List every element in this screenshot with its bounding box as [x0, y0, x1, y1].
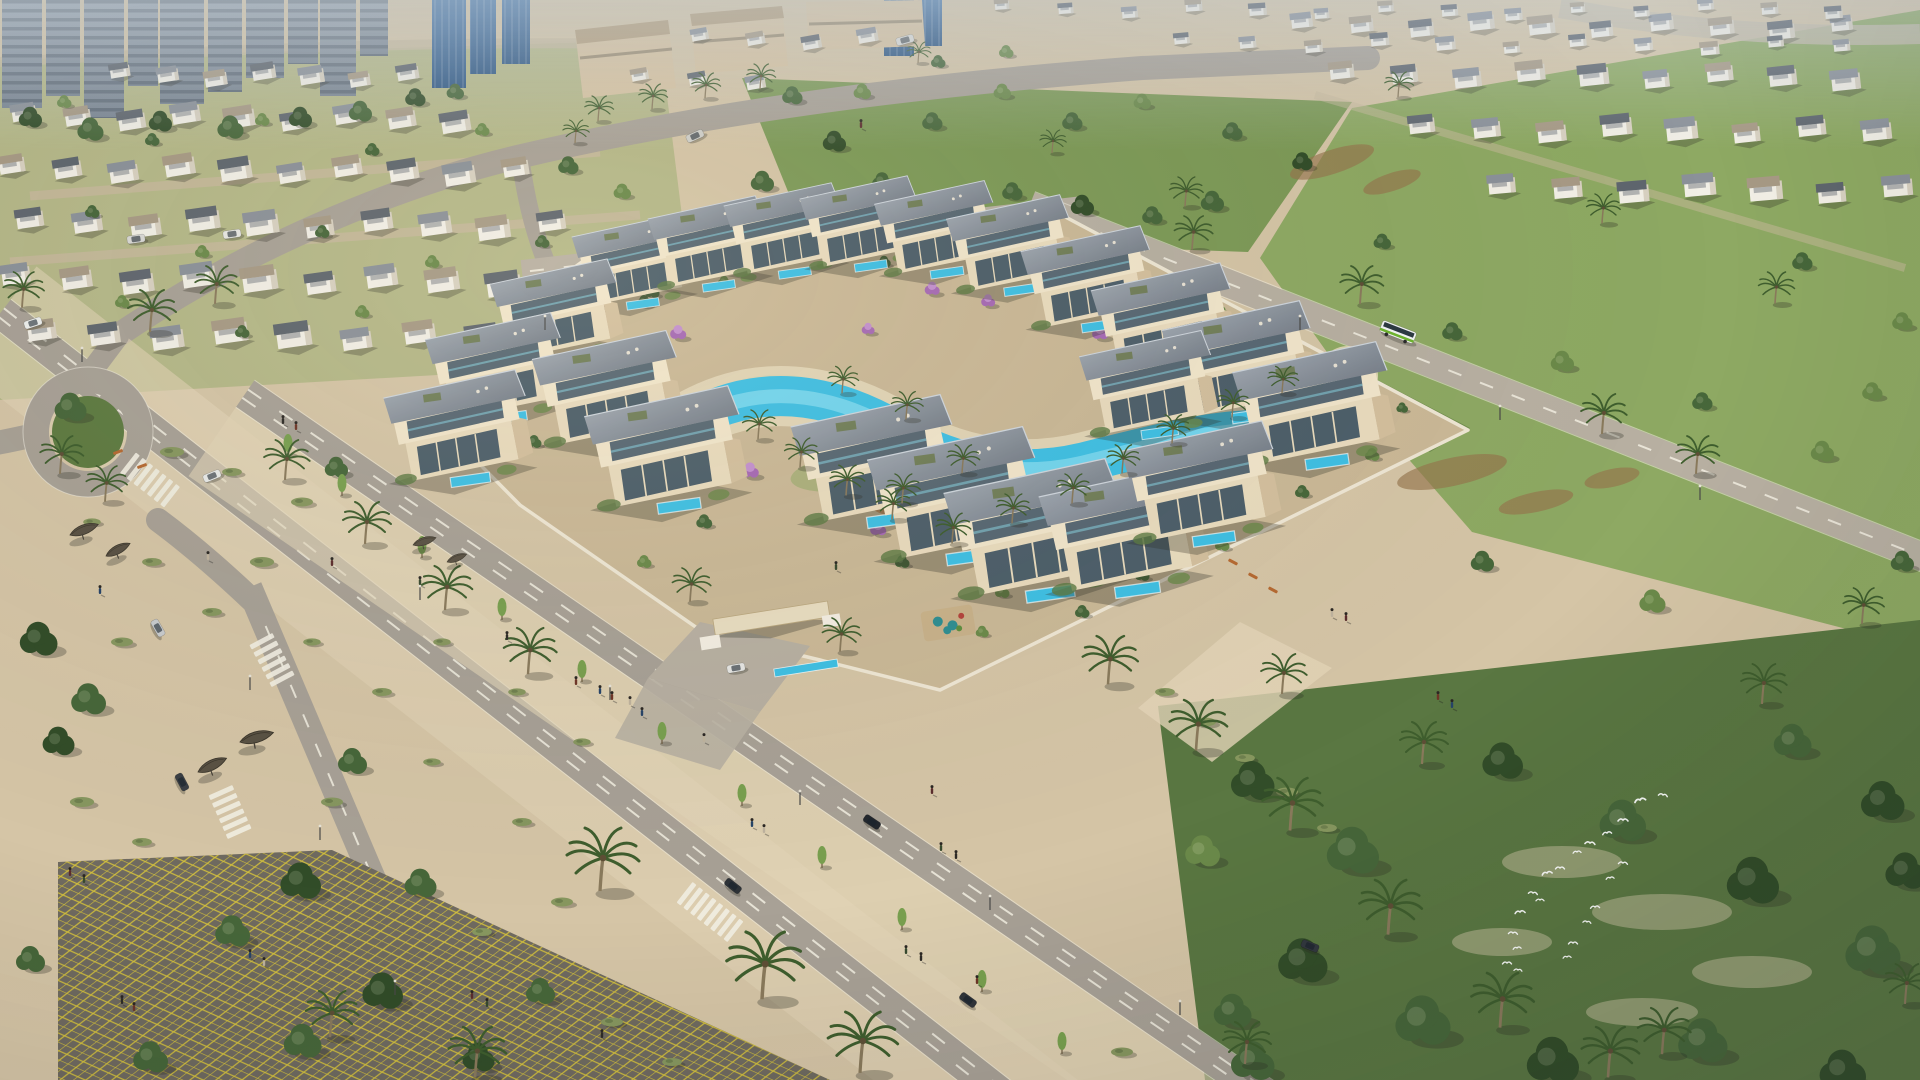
screenshot-root: [0, 0, 1920, 1080]
light-vignette: [0, 0, 1920, 1080]
aerial-development-render: [0, 0, 1920, 1080]
